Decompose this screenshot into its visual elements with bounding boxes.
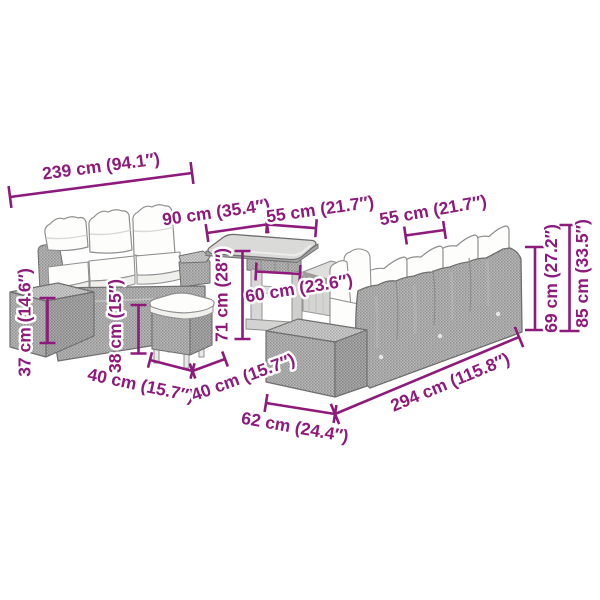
svg-text:71 cm (28″): 71 cm (28″) bbox=[212, 248, 232, 342]
svg-text:37 cm (14.6″): 37 cm (14.6″) bbox=[15, 268, 35, 377]
svg-text:85 cm (33.5″): 85 cm (33.5″) bbox=[572, 219, 592, 328]
svg-text:69 cm (27.2″): 69 cm (27.2″) bbox=[541, 224, 561, 333]
svg-text:38 cm (15″): 38 cm (15″) bbox=[105, 279, 125, 373]
